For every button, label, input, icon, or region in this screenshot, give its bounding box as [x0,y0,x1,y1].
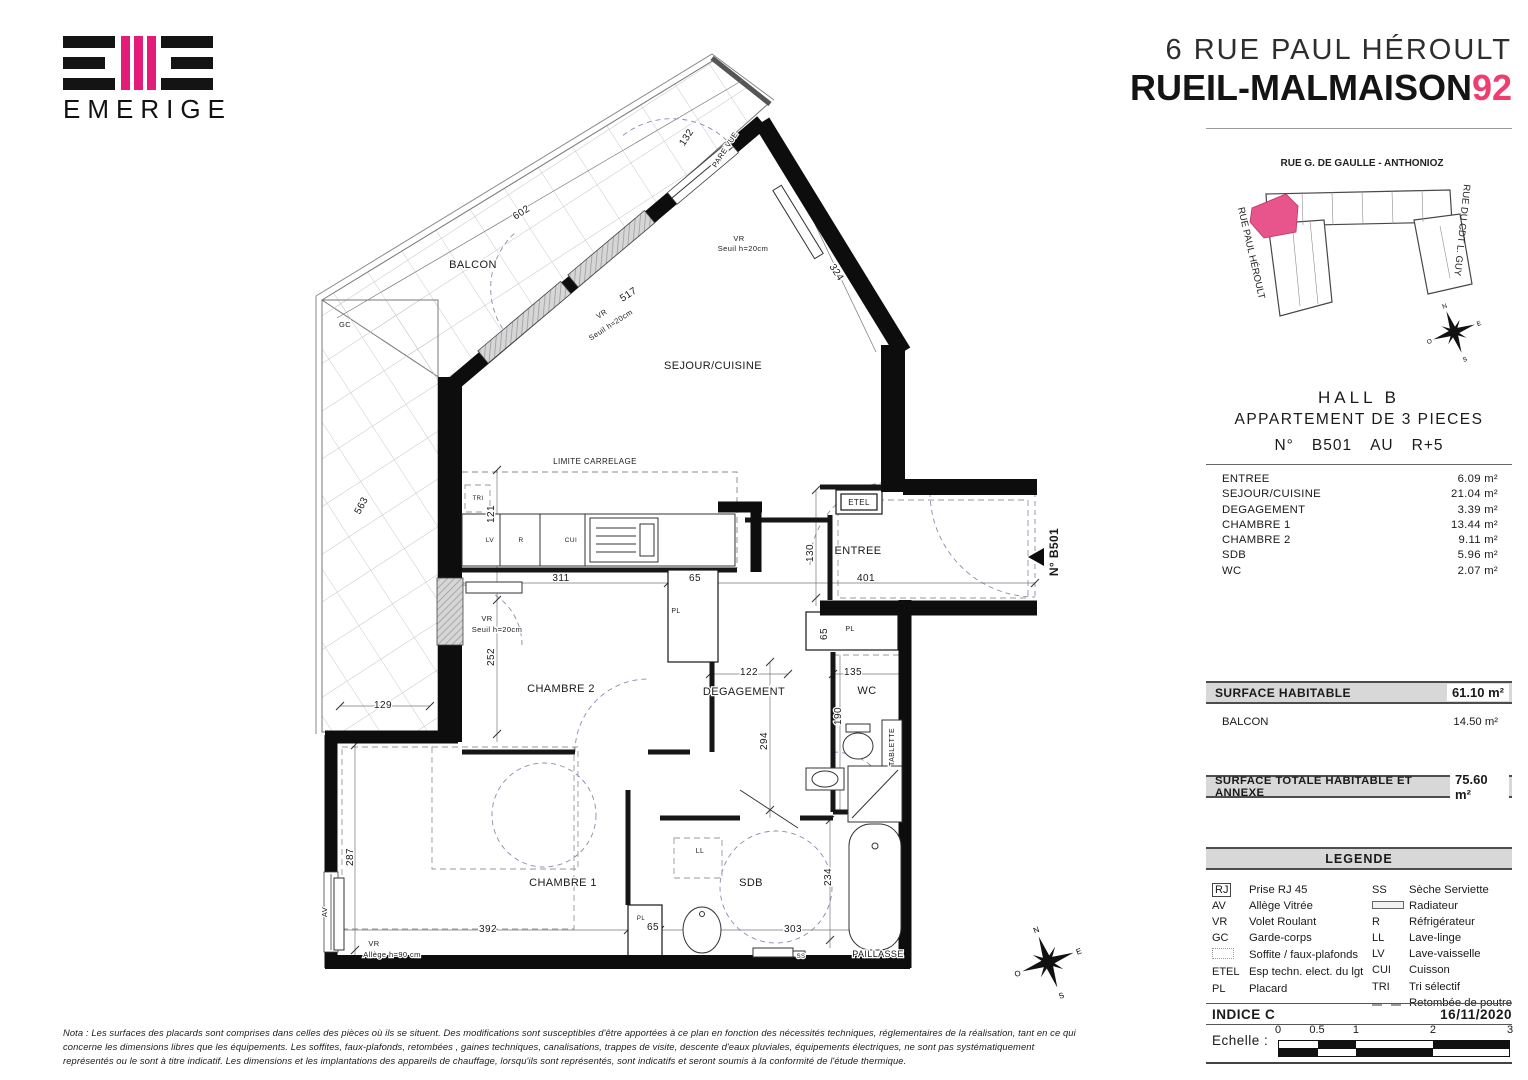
legend-label: Esp techn. elect. du lgt [1249,966,1363,978]
room-area: 21.04 m² [1451,488,1498,500]
plan-label: 234 [823,868,834,886]
lave-linge-box [674,838,722,878]
placard-chambre1 [628,905,662,962]
plan-label: VR [594,307,608,321]
legend-label: Placard [1249,983,1287,995]
revision-divider-bottom [1206,1062,1512,1064]
plan-label: 130 [805,544,816,562]
indice-label: INDICE C [1212,1007,1275,1022]
plan-label: CUI [565,537,577,544]
legend-header: LEGENDE [1206,847,1512,870]
legend-label: Lave-linge [1409,932,1461,944]
plan-label: N° B501 [1047,528,1061,576]
page: N E S O [0,0,1528,1080]
plan-label: LV [486,537,495,544]
room-name: WC [1222,565,1241,577]
legend-item: Soffite / faux-plafonds [1212,948,1372,962]
legend-code-boxed: RJ [1212,883,1231,897]
plan-label: DEGAGEMENT [703,686,785,698]
apartment-type: APPARTEMENT DE 3 PIECES [1206,411,1512,429]
plan-label: AV [320,907,329,917]
legend-item: CUICuisson [1372,964,1522,976]
unit-floor: R+5 [1412,437,1444,454]
legend-right-column: SSSèche ServietteRadiateurRRéfrigérateur… [1372,884,1522,1009]
balcon-value: 14.50 m² [1453,716,1498,728]
plan-compass [1001,914,1095,1013]
room-area: 6.09 m² [1458,473,1498,485]
legend-item: RJPrise RJ 45 [1212,884,1372,896]
legend-label: Soffite / faux-plafonds [1249,949,1358,961]
plan-label: 121 [486,505,497,523]
plan-label: LL [696,848,705,855]
legend-left-column: RJPrise RJ 45AVAllège VitréeVRVolet Roul… [1212,884,1372,995]
logo-pink-bars [121,36,156,90]
plan-label: VR [733,234,744,243]
legend-label: Réfrigérateur [1409,916,1475,928]
legend-label: Volet Roulant [1249,916,1316,928]
legend-code-cell: SS [1372,884,1409,896]
plan-label: TABLETTE [889,728,896,766]
plan-label: PL [845,626,854,633]
hall-label: HALL B [1206,388,1512,408]
legend-label: Prise RJ 45 [1249,884,1307,896]
legend-item: Radiateur [1372,900,1522,912]
plan-label: 190 [833,707,844,725]
legend-label: Tri sélectif [1409,981,1460,993]
surface-totale-band: SURFACE TOTALE HABITABLE ET ANNEXE 75.60… [1206,775,1512,798]
project-city: RUEIL-MALMAISON92 [1000,70,1512,106]
bench [753,948,793,957]
plan-label: 65 [647,922,659,933]
legend-item: ETELEsp techn. elect. du lgt [1212,966,1372,978]
plan-label: 303 [784,924,802,935]
nota-text: Nota : Les surfaces des placards sont co… [63,1026,1083,1068]
plan-label: 294 [759,732,770,750]
scale-label: Echelle : [1212,1033,1268,1048]
legend-code-cell: RJ [1212,884,1249,896]
sdb-door-leaf [740,790,798,828]
room-area: 3.39 m² [1458,504,1498,516]
unit-number: B501 [1312,437,1352,454]
legend-symbol-cell [1372,900,1409,912]
legend-code-cell: ETEL [1212,966,1249,978]
room-name: SEJOUR/CUISINE [1222,488,1321,500]
room-row: DEGAGEMENT3.39 m² [1222,504,1498,516]
plan-label: GC [339,320,351,329]
scale-tick: 2 [1430,1024,1436,1036]
radiator-symbol [1372,901,1404,909]
scale-tick: 0 [1275,1024,1281,1036]
plan-label: PL [637,916,645,922]
plan-label: VR [481,614,492,623]
dotted-symbol [1212,948,1234,959]
rooms-table: ENTREE6.09 m²SEJOUR/CUISINE21.04 m²DEGAG… [1222,473,1498,577]
plan-label: 287 [345,848,356,866]
surface-totale-value: 75.60 m² [1450,771,1509,803]
room-row: SDB5.96 m² [1222,549,1498,561]
legend-code-cell: LV [1372,948,1409,960]
legend-label: Sèche Serviette [1409,884,1489,896]
plan-label: 311 [552,573,569,584]
room-name: DEGAGEMENT [1222,504,1305,516]
plan-label: LIMITE CARRELAGE [553,457,637,466]
room-area: 9.11 m² [1458,534,1498,546]
unit-floor-label: AU [1370,437,1394,454]
radiator-chambre1 [334,878,344,950]
unit-number-label: N° [1274,437,1293,454]
room-row: CHAMBRE 29.11 m² [1222,534,1498,546]
plan-label: PAILLASSE [852,949,903,959]
unit-number-line: N°B501AUR+5 [1206,437,1512,455]
room-name: CHAMBRE 2 [1222,534,1291,546]
plan-label: Seuil h=20cm [718,244,768,253]
room-area: 5.96 m² [1458,549,1498,561]
plan-label: 392 [479,924,497,935]
legend-code-cell: TRI [1372,981,1409,993]
room-name: CHAMBRE 1 [1222,519,1291,531]
scale-tick-labels: 00.5123 [1278,1024,1510,1037]
plan-label: TRI [473,496,484,502]
legend-item: GCGarde-corps [1212,932,1372,944]
surface-habitable-value: 61.10 m² [1447,684,1509,701]
legend-label: Allège Vitrée [1249,900,1313,912]
plan-label: CHAMBRE 2 [527,683,595,695]
legend-item: LVLave-vaisselle [1372,948,1522,960]
plan-label: VR [368,939,379,948]
room-row: WC2.07 m² [1222,565,1498,577]
legend-code-cell: AV [1212,900,1249,912]
revision-date: 16/11/2020 [1300,1007,1512,1022]
plan-label: 122 [740,667,758,678]
plan-label: 129 [374,700,392,711]
legend-item: VRVolet Roulant [1212,916,1372,928]
plan-label: BALCON [449,259,497,271]
plan-label: SS [797,954,806,960]
plan-label: 65 [819,628,830,640]
legend-label: Cuisson [1409,964,1450,976]
legend-code-cell: VR [1212,916,1249,928]
plan-label: R [518,537,523,544]
room-area: 13.44 m² [1451,519,1498,531]
site-map: RUE G. DE GAULLE - ANTHONIOZ RUE PAUL HÉ… [1202,146,1514,378]
legend-item: LLLave-linge [1372,932,1522,944]
room-name: SDB [1222,549,1246,561]
legend-code-cell: R [1372,916,1409,928]
radiator-chambre2 [466,582,522,593]
plan-label: WC [857,685,876,697]
entry-arrow-icon [1028,548,1044,566]
room-row: CHAMBRE 113.44 m² [1222,519,1498,531]
legend-title: LEGENDE [1325,852,1392,866]
room-area: 2.07 m² [1458,565,1498,577]
legend-label: Lave-vaisselle [1409,948,1481,960]
map-compass [1416,294,1492,374]
plan-label: Seuil h=20cm [472,625,522,634]
dept-number: 92 [1472,67,1512,108]
scale-tick: 3 [1507,1024,1513,1036]
legend-symbol-cell [1212,948,1249,962]
legend-item: RRéfrigérateur [1372,916,1522,928]
plan-label: CHAMBRE 1 [529,877,597,889]
scale-bar [1278,1040,1510,1057]
revision-divider-top [1206,1003,1512,1004]
toilet [843,733,873,759]
city-name: RUEIL-MALMAISON [1130,67,1472,108]
legend-item: PLPlacard [1212,983,1372,995]
map-unit-highlight [1250,194,1298,238]
street-top-label: RUE G. DE GAULLE - ANTHONIOZ [1281,158,1444,169]
surface-habitable-label: SURFACE HABITABLE [1206,686,1351,700]
balcon-row: BALCON 14.50 m² [1222,716,1498,728]
window-chambre2 [437,578,463,645]
legend-label: Garde-corps [1249,932,1312,944]
legend-item: TRITri sélectif [1372,981,1522,993]
plan-label: 252 [486,648,497,666]
legend-code-cell: PL [1212,983,1249,995]
unit-divider [1206,464,1512,465]
legend-label: Radiateur [1409,900,1458,912]
project-address: 6 RUE PAUL HÉROULT [1000,34,1512,67]
legend-item: AVAllège Vitrée [1212,900,1372,912]
plan-label: PL [671,608,680,615]
plan-label: 135 [844,667,862,678]
plan-label: SDB [739,877,763,889]
brand-name: EMERIGE [63,94,232,125]
room-row: ENTREE6.09 m² [1222,473,1498,485]
legend-item: SSSèche Serviette [1372,884,1522,896]
scale-tick: 1 [1353,1024,1359,1036]
plan-label: 517 [618,285,639,304]
legend-code-cell: CUI [1372,964,1409,976]
plan-label: ENTREE [834,545,881,557]
scale-tick: 0.5 [1309,1024,1324,1036]
legend-code-cell: LL [1372,932,1409,944]
plan-label: ETEL [848,498,870,507]
plan-label: SEJOUR/CUISINE [664,360,762,372]
balcon-label: BALCON [1222,716,1268,728]
plan-label: 401 [857,573,875,584]
surface-totale-label: SURFACE TOTALE HABITABLE ET ANNEXE [1206,775,1450,799]
legend-code-cell: GC [1212,932,1249,944]
surface-habitable-band: SURFACE HABITABLE 61.10 m² [1206,681,1512,704]
header-divider [1206,128,1512,129]
plan-label: Allège h=90 cm [363,950,421,959]
room-name: ENTREE [1222,473,1270,485]
plan-label: 65 [689,573,701,584]
room-row: SEJOUR/CUISINE21.04 m² [1222,488,1498,500]
